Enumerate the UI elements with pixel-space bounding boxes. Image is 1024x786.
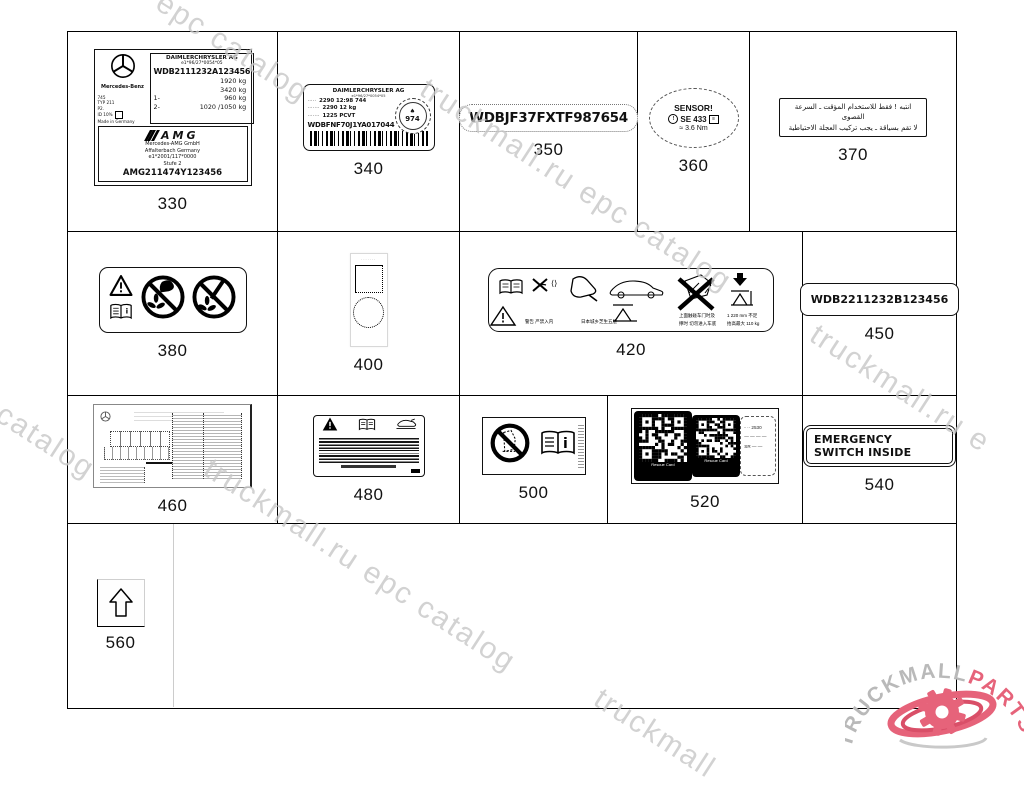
microtext-paragraph [319,453,419,463]
cell-340: DAIMLERCHRYSLER AG e1*96/27*0054*05 ····… [278,32,460,231]
part-number-480: 480 [354,485,384,505]
part-number-520: 520 [690,492,720,512]
cell-400: ∙∙∙∙∙∙∙ 400 [278,232,460,395]
diagram-sheet: Mercedes-Benz 745 TYP 211 P2. ID 10% Mad… [67,31,957,709]
cell-560: 560 [68,524,173,707]
no-reach-into-fan-icon [140,274,186,325]
brand-text: Mercedes-Benz [98,84,148,90]
blank-label-400: ∙∙∙∙∙∙∙ [350,253,388,347]
table-small-block [100,467,145,483]
cell-380: i 380 [68,232,278,395]
light-divider [173,524,174,707]
svg-text:i: i [126,306,129,315]
part-number-540: 540 [865,475,895,495]
box-icon: ≡ [709,115,719,124]
cell-540: EMERGENCY SWITCH INSIDE 540 [803,396,956,523]
cell-460: 460 [68,396,278,523]
qr-code-1: Rescue Card [634,411,692,481]
certification-label-340: DAIMLERCHRYSLER AG e1*96/27*0054*05 ····… [303,84,435,150]
cell-480: 480 [278,396,460,523]
grid-row-4: 560 [68,524,956,707]
grid-row-3: 460 [68,396,956,524]
cell-450: WDB2211232B123456 450 [803,232,956,395]
manual-book-icon: i [109,303,133,325]
warning-triangle-icon [321,416,339,437]
dashed-info-panel: ‑ ·· 2530 — — — — SR — — [740,416,776,476]
circle-exclamation-icon: ! [668,114,678,124]
part-number-380: 380 [158,341,188,361]
part-number-330: 330 [158,194,188,214]
mercedes-star-icon [100,409,111,427]
plate-side-text: 745 TYP 211 P2. ID 10% Made in Germany [98,95,148,124]
jack-car-icon [395,418,417,436]
amg-vin: AMG211474Y123456 [100,168,246,178]
part-number-370: 370 [838,145,868,165]
part-number-340: 340 [354,159,384,179]
svg-text:i: i [563,436,568,452]
part-number-350: 350 [534,140,564,160]
emergency-switch-label-540: EMERGENCY SWITCH INSIDE [803,425,956,467]
arabic-warning-label-370: انتبه ! فقط للاستخدام المؤقت ـ السرعة ال… [779,98,927,138]
cell-360: SENSOR! ! SE 433 ≡ ≈ 3.6 Nm 360 [638,32,750,231]
text-warning-label-480 [313,415,425,477]
part-number-500: 500 [519,483,549,503]
microtext-paragraph [319,437,419,449]
jack-warning-label-420: ⟨⟩ [488,268,774,332]
part-number-420: 420 [616,340,646,360]
mercedes-star-icon [98,53,148,83]
part-number-460: 460 [158,496,188,516]
qr-code-2: Rescue Card [692,415,741,477]
amg-logo: AMG [100,129,246,141]
circle-placeholder [353,297,384,328]
manual-book-i-icon: i [538,429,578,462]
logo-red-text: PARTS [965,665,1024,737]
grid-row-1: Mercedes-Benz 745 TYP 211 P2. ID 10% Mad… [68,32,956,232]
manual-book-icon [358,418,376,436]
vertical-microtext [578,424,584,468]
no-tools-into-fan-icon [191,274,237,325]
grid-row-2: i 380 ∙∙∙∙∙∙∙ 400 [68,232,956,396]
cell-420: ⟨⟩ [460,232,803,395]
type-plate-330: Mercedes-Benz 745 TYP 211 P2. ID 10% Mad… [94,49,252,186]
microtext-footer [341,465,396,468]
vehicle-data-box: DAIMLERCHRYSLER AG e1*96/27*0054*05 WDB2… [150,53,255,124]
table-dense-lines [172,413,242,479]
part-number-360: 360 [679,156,709,176]
vin-label-350: WDBJF37FXTF987654 [459,104,638,132]
part-number-560: 560 [106,633,136,653]
part-number-400: 400 [354,355,384,375]
no-child-seat-icon [489,422,531,469]
vin-label-450: WDB2211232B123456 [800,283,960,316]
canada-stamp-icon: ♠ 974 [395,98,431,134]
sensor-label-360: SENSOR! ! SE 433 ≡ ≈ 3.6 Nm [649,88,739,148]
table-dotted-cells [110,431,170,447]
fan-warning-label-380: i [99,267,247,333]
table-dotted-row [104,447,170,460]
cell-370: انتبه ! فقط للاستخدام المؤقت ـ السرعة ال… [750,32,956,231]
amg-plate-section: AMG Mercedes-AMG GmbH Affalterbach Germa… [98,126,248,182]
vin-number: WDB2111232A123456 [154,67,251,76]
cell-500: i 500 [460,396,608,523]
square-placeholder [355,265,383,293]
svg-text:⟨⟩: ⟨⟩ [551,279,557,288]
arrow-up-label-560 [97,579,145,627]
part-number-450: 450 [865,324,895,344]
cell-520: Rescue Card Rescue Card ‑ ·· 2530 — — — … [608,396,803,523]
checkbox-mark [115,111,123,119]
tire-pressure-table-460 [93,404,252,488]
airbag-warning-label-500: i [482,417,586,475]
warning-triangle-icon [108,274,134,302]
cell-330: Mercedes-Benz 745 TYP 211 P2. ID 10% Mad… [68,32,278,231]
cell-350: WDBJF37FXTF987654 350 [460,32,638,231]
up-arrow-icon [105,586,137,620]
rescue-card-label-520: Rescue Card Rescue Card ‑ ·· 2530 — — — … [631,408,779,484]
